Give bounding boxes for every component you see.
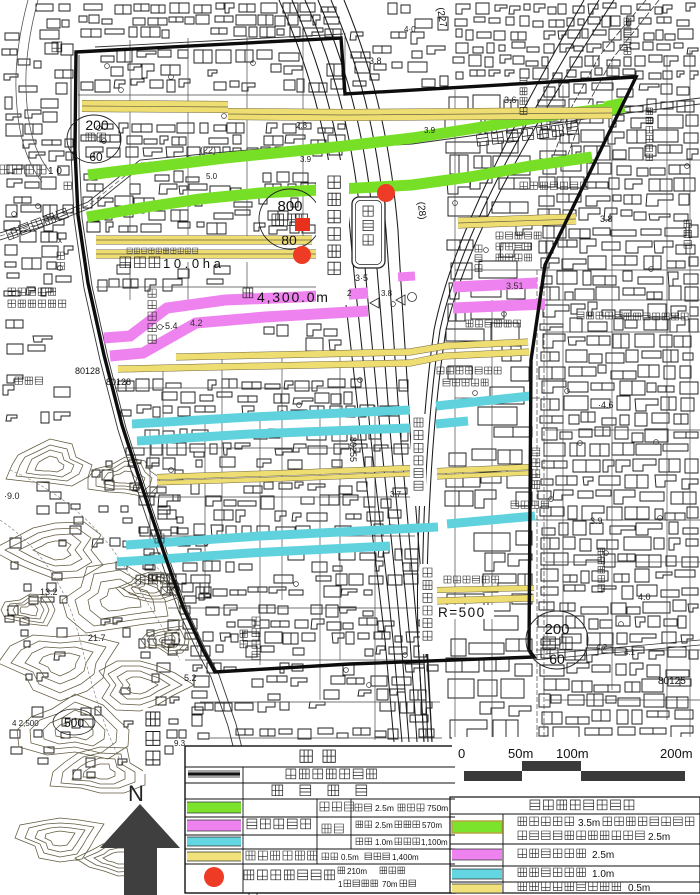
svg-text:80255: 80255: [348, 437, 358, 462]
svg-text:2.5m: 2.5m: [375, 803, 394, 813]
svg-text:2: 2: [347, 289, 352, 298]
svg-text:R=500: R=500: [438, 605, 486, 620]
svg-text:2.5m: 2.5m: [375, 821, 393, 830]
svg-text:4.2: 4.2: [190, 318, 203, 328]
svg-text:4.1: 4.1: [624, 648, 636, 657]
svg-text:200: 200: [85, 117, 109, 133]
svg-text:60: 60: [89, 150, 103, 164]
svg-text:3·5: 3·5: [355, 273, 368, 283]
svg-text:1 0: 1 0: [48, 166, 62, 177]
svg-text:(28): (28): [415, 201, 428, 220]
svg-text:80128: 80128: [106, 377, 131, 387]
svg-text:5.0: 5.0: [206, 172, 218, 181]
svg-text:21.7: 21.7: [88, 633, 106, 643]
svg-text:800: 800: [277, 198, 302, 215]
svg-text:(22): (22): [200, 145, 216, 155]
svg-text:·4.6: ·4.6: [598, 400, 614, 410]
svg-text:13.2: 13.2: [40, 587, 58, 597]
svg-text:3.9: 3.9: [300, 155, 312, 164]
svg-text:N: N: [128, 781, 144, 806]
svg-text:3.6: 3.6: [504, 95, 517, 105]
svg-text:500: 500: [64, 716, 84, 730]
svg-text:70m: 70m: [382, 880, 398, 889]
svg-text:3.8: 3.8: [369, 56, 382, 66]
svg-text:2.8: 2.8: [296, 121, 308, 130]
svg-text:3.7: 3.7: [390, 490, 402, 499]
svg-text:9.3: 9.3: [174, 739, 186, 748]
svg-text:200: 200: [544, 621, 569, 638]
svg-text:100m: 100m: [556, 746, 589, 761]
svg-text:60: 60: [549, 651, 565, 667]
svg-text:·5.4: ·5.4: [162, 321, 178, 331]
svg-text:80128: 80128: [75, 366, 100, 376]
svg-text:0.5m: 0.5m: [341, 853, 359, 862]
svg-text:x: x: [58, 236, 62, 245]
svg-text:80125: 80125: [658, 676, 686, 687]
svg-text:3.9: 3.9: [424, 126, 436, 135]
svg-text:570m: 570m: [422, 821, 442, 830]
svg-text:0.5m: 0.5m: [628, 883, 650, 894]
svg-text:50m: 50m: [508, 746, 533, 761]
svg-text:·9.0: ·9.0: [4, 491, 20, 501]
svg-text:5.2: 5.2: [184, 673, 197, 683]
svg-text:80: 80: [281, 232, 297, 248]
svg-text:200m: 200m: [660, 746, 693, 761]
svg-text:1.0m: 1.0m: [375, 838, 393, 847]
svg-text:210m: 210m: [347, 867, 367, 876]
svg-text:3.5m: 3.5m: [578, 818, 600, 829]
svg-text:1,400m: 1,400m: [392, 853, 419, 862]
svg-text:4.2: 4.2: [596, 643, 608, 652]
svg-text:4.0: 4.0: [638, 592, 651, 602]
svg-text:1: 1: [338, 880, 343, 889]
svg-text:750m: 750m: [427, 803, 448, 813]
svg-text:4 2,500: 4 2,500: [12, 719, 39, 728]
svg-text:1,100m: 1,100m: [421, 838, 448, 847]
svg-text:0: 0: [458, 746, 465, 761]
svg-text:1 0 . 0 h a: 1 0 . 0 h a: [163, 256, 222, 271]
svg-text:2.5m: 2.5m: [592, 850, 614, 861]
svg-text:3.9: 3.9: [590, 516, 603, 526]
svg-text:3.8: 3.8: [600, 214, 613, 224]
svg-text:3.8: 3.8: [381, 289, 393, 298]
svg-text:1.0m: 1.0m: [592, 869, 614, 880]
svg-text:2.5m: 2.5m: [648, 832, 670, 843]
svg-text:4,300.0m: 4,300.0m: [257, 289, 330, 305]
svg-text:4·0: 4·0: [404, 25, 416, 34]
svg-text:3.51: 3.51: [506, 281, 524, 291]
